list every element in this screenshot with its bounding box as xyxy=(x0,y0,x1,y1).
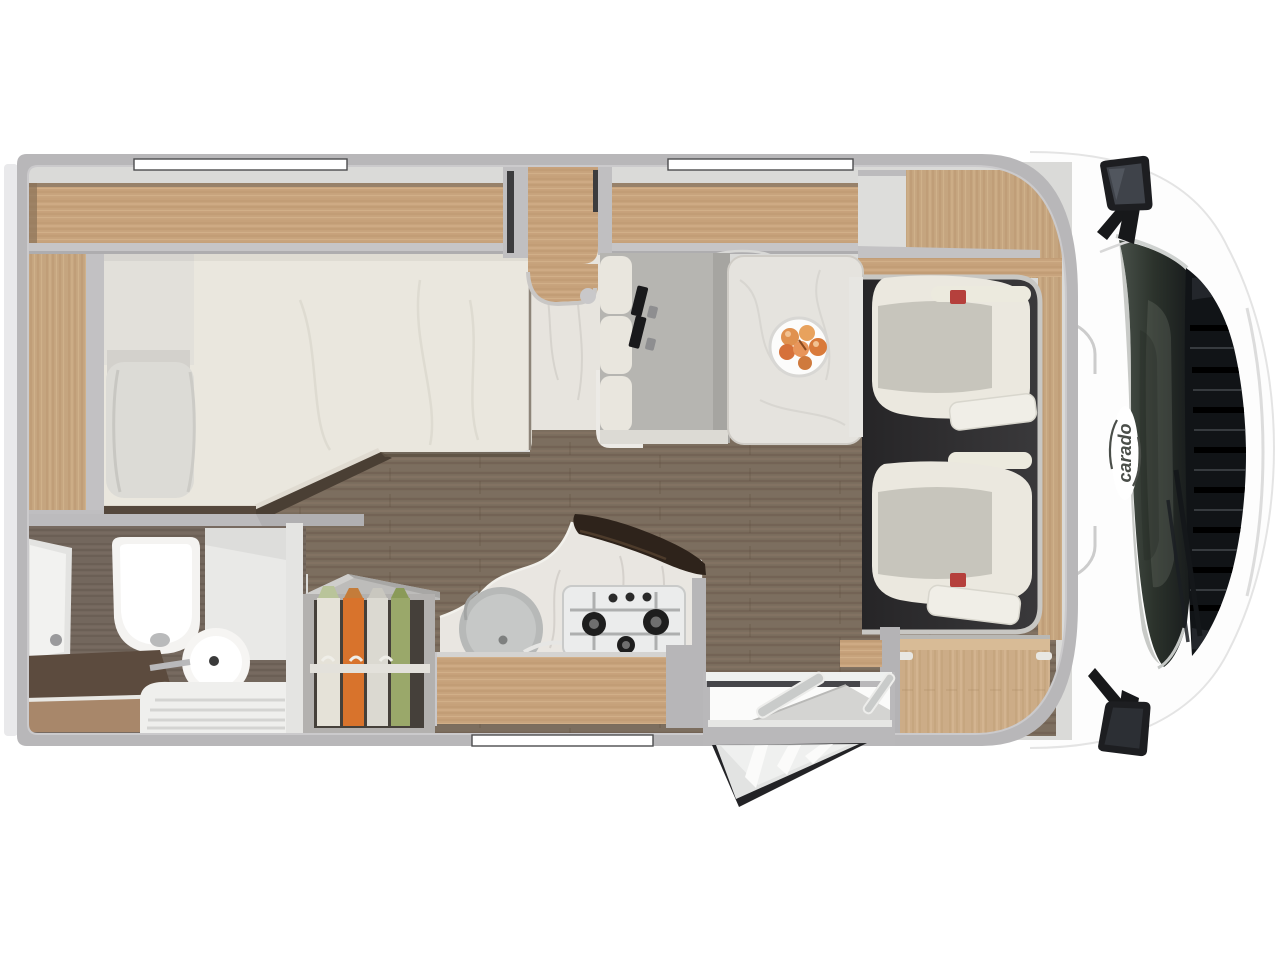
svg-text:carado: carado xyxy=(1115,423,1135,482)
